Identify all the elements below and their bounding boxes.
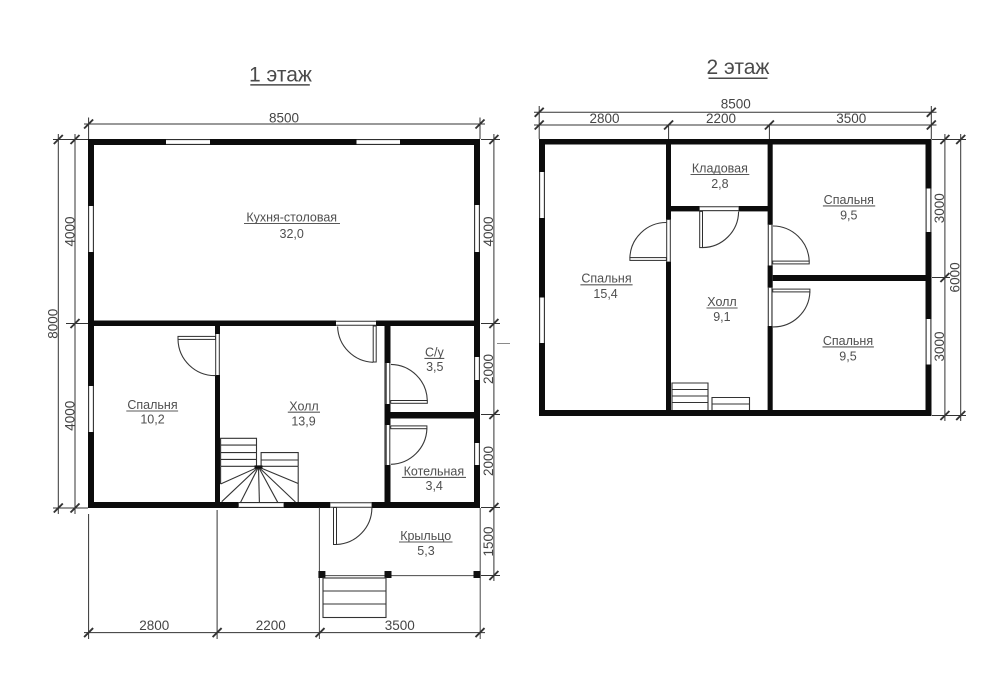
svg-text:Холл: Холл xyxy=(707,295,736,309)
svg-text:2 этаж: 2 этаж xyxy=(707,56,770,79)
svg-text:3000: 3000 xyxy=(932,331,947,361)
svg-text:3500: 3500 xyxy=(836,111,866,126)
svg-text:Кухня-столовая: Кухня-столовая xyxy=(246,211,337,225)
svg-text:Спальня: Спальня xyxy=(581,272,631,286)
svg-text:2800: 2800 xyxy=(589,111,619,126)
svg-text:Спальня: Спальня xyxy=(824,193,874,207)
svg-text:Крыльцо: Крыльцо xyxy=(400,529,451,543)
svg-text:6000: 6000 xyxy=(948,262,963,292)
svg-text:Спальня: Спальня xyxy=(823,334,873,348)
svg-text:15,4: 15,4 xyxy=(593,287,617,301)
svg-text:1 этаж: 1 этаж xyxy=(249,64,312,87)
svg-text:4000: 4000 xyxy=(481,216,496,246)
svg-text:10,2: 10,2 xyxy=(140,413,164,427)
svg-text:С/у: С/у xyxy=(425,345,445,359)
svg-text:32,0: 32,0 xyxy=(280,227,304,241)
svg-text:5,3: 5,3 xyxy=(417,544,434,558)
svg-text:4000: 4000 xyxy=(62,401,77,431)
svg-text:3500: 3500 xyxy=(385,618,415,633)
svg-text:2,8: 2,8 xyxy=(711,177,728,191)
svg-text:2000: 2000 xyxy=(481,446,496,476)
svg-text:Холл: Холл xyxy=(289,399,318,413)
svg-text:4000: 4000 xyxy=(62,216,77,246)
svg-text:Котельная: Котельная xyxy=(404,464,465,478)
svg-text:2200: 2200 xyxy=(256,618,286,633)
svg-text:Кладовая: Кладовая xyxy=(692,161,748,175)
svg-text:3000: 3000 xyxy=(932,193,947,223)
svg-text:9,5: 9,5 xyxy=(840,209,857,223)
svg-text:3,4: 3,4 xyxy=(426,479,443,493)
svg-text:9,5: 9,5 xyxy=(839,350,856,364)
svg-text:13,9: 13,9 xyxy=(291,415,315,429)
svg-text:3,5: 3,5 xyxy=(426,360,443,374)
svg-text:8500: 8500 xyxy=(721,96,751,111)
svg-text:8000: 8000 xyxy=(46,309,61,339)
svg-text:2000: 2000 xyxy=(481,354,496,384)
svg-text:2200: 2200 xyxy=(706,111,736,126)
svg-text:9,1: 9,1 xyxy=(713,310,730,324)
svg-text:Спальня: Спальня xyxy=(127,398,177,412)
svg-text:8500: 8500 xyxy=(269,111,299,126)
svg-text:1500: 1500 xyxy=(481,526,496,556)
svg-text:2800: 2800 xyxy=(139,618,169,633)
